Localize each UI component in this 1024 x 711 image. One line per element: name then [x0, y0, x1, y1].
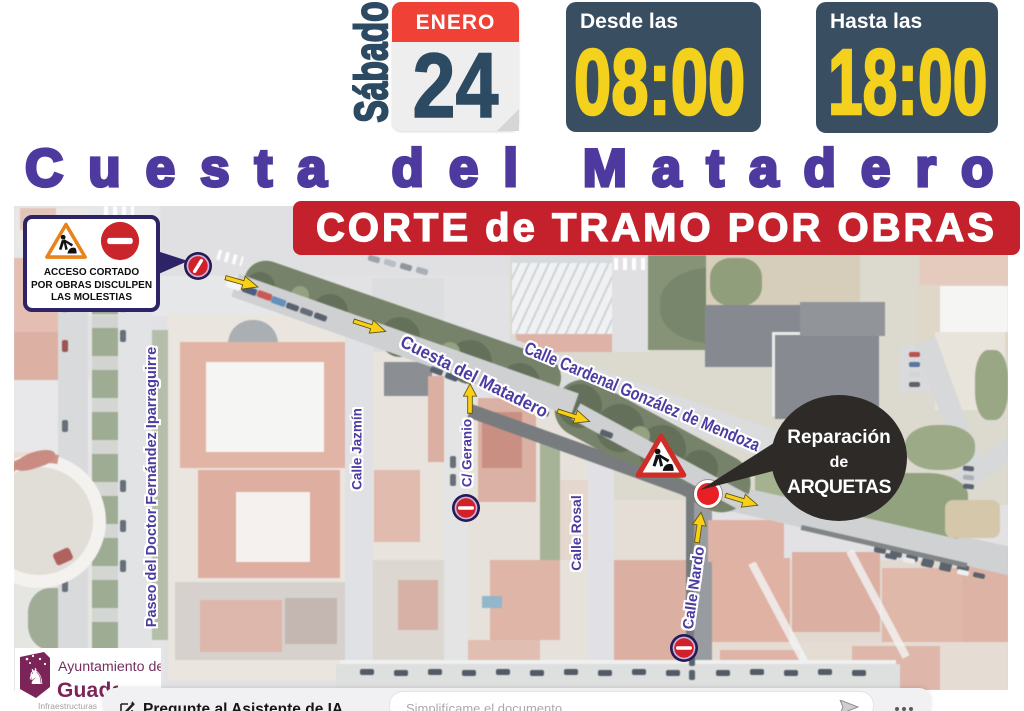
svg-text:♞: ♞ — [26, 664, 46, 689]
